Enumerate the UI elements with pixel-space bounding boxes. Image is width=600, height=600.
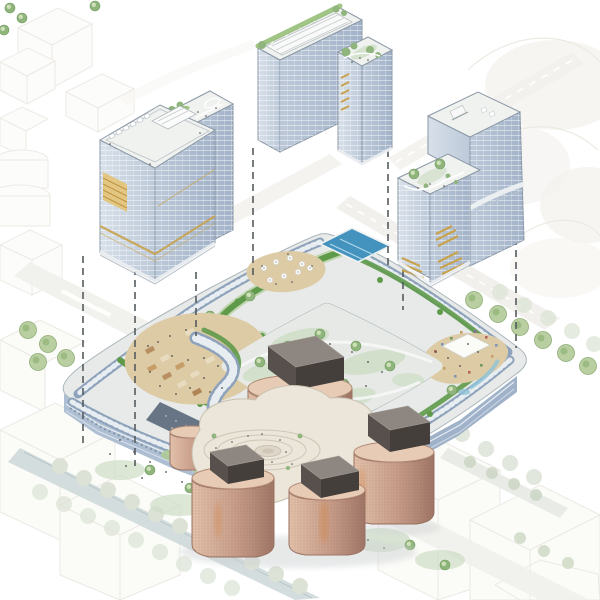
tower-b-front-volume — [338, 37, 392, 164]
tower-a-main-volume — [100, 105, 215, 284]
rendering-canvas — [0, 0, 600, 600]
exploded-axonometric-diagram — [0, 0, 600, 600]
